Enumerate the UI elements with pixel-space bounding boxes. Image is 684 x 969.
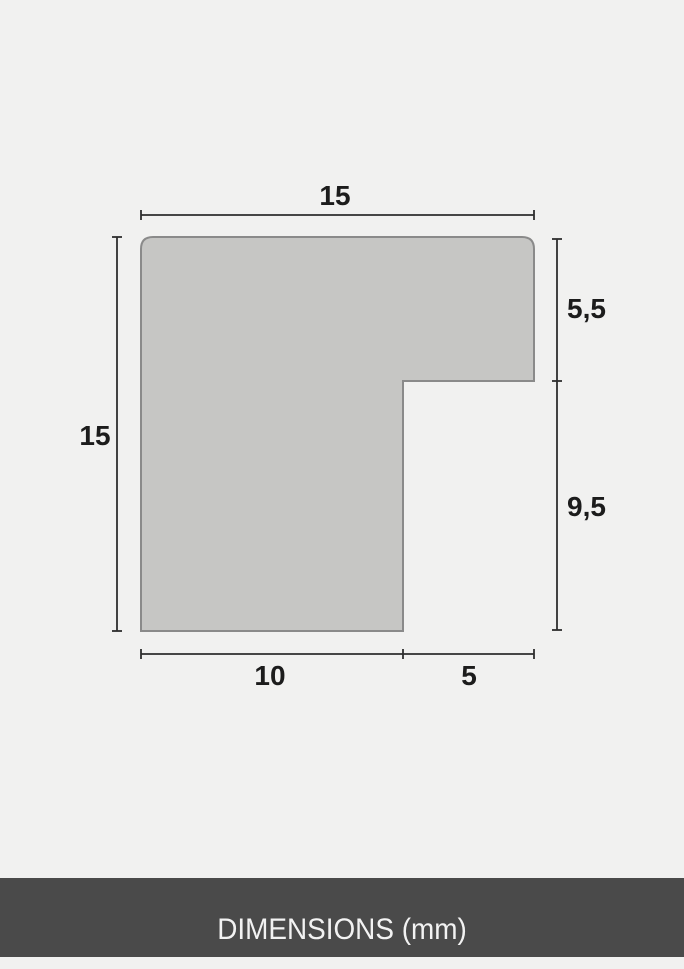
svg-text:5,5: 5,5 — [567, 293, 606, 324]
svg-text:10: 10 — [254, 660, 285, 691]
svg-text:15: 15 — [319, 180, 350, 211]
svg-text:9,5: 9,5 — [567, 491, 606, 522]
svg-text:5: 5 — [461, 660, 477, 691]
svg-text:15: 15 — [79, 420, 110, 451]
